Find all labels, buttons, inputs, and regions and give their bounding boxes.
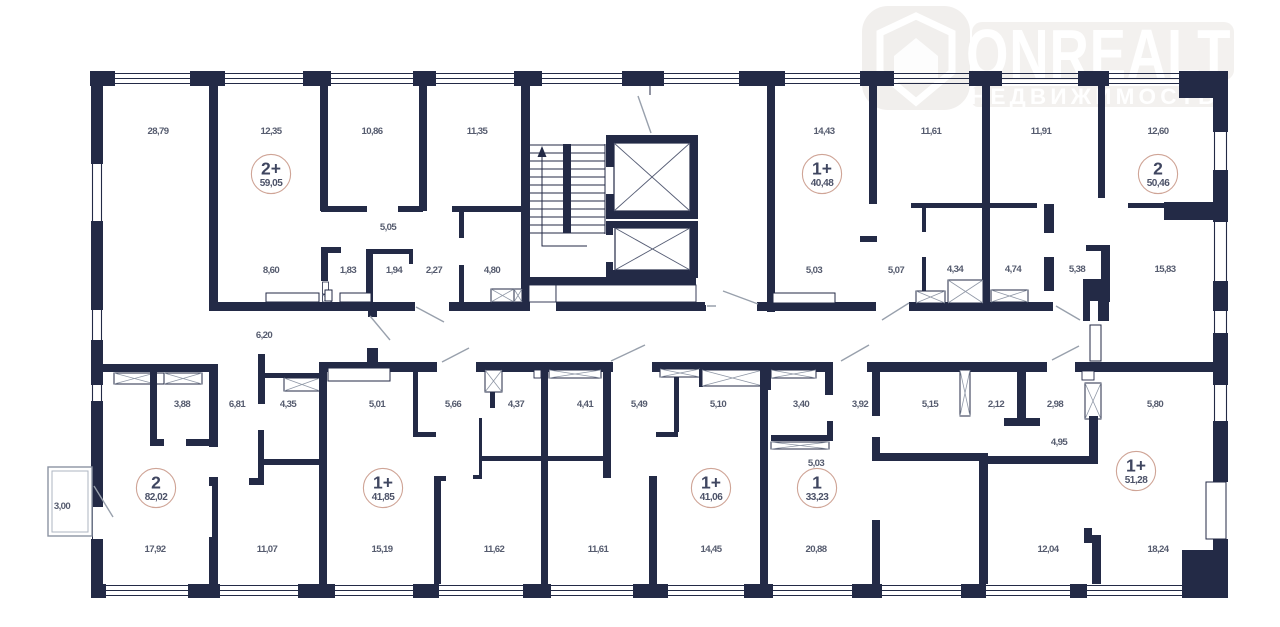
svg-text:5,03: 5,03 xyxy=(806,265,823,276)
svg-text:2: 2 xyxy=(1153,159,1163,179)
svg-text:15,19: 15,19 xyxy=(371,544,392,555)
svg-text:5,15: 5,15 xyxy=(922,399,940,410)
svg-text:2,98: 2,98 xyxy=(1047,399,1065,410)
svg-text:5,49: 5,49 xyxy=(631,399,648,410)
svg-text:20,88: 20,88 xyxy=(805,544,827,555)
svg-text:1+: 1+ xyxy=(1126,456,1146,476)
svg-text:4,34: 4,34 xyxy=(947,264,965,275)
svg-text:33,23: 33,23 xyxy=(806,492,829,503)
svg-text:11,91: 11,91 xyxy=(1031,126,1053,137)
svg-text:4,41: 4,41 xyxy=(577,399,595,410)
svg-text:1+: 1+ xyxy=(373,473,393,493)
svg-text:12,04: 12,04 xyxy=(1037,544,1059,555)
svg-text:5,05: 5,05 xyxy=(380,222,398,233)
svg-text:3,00: 3,00 xyxy=(54,501,71,512)
svg-text:4,74: 4,74 xyxy=(1005,264,1023,275)
svg-text:6,81: 6,81 xyxy=(229,399,247,410)
svg-text:2+: 2+ xyxy=(261,159,281,179)
svg-text:1: 1 xyxy=(812,473,822,493)
svg-text:11,62: 11,62 xyxy=(484,544,505,555)
svg-text:11,07: 11,07 xyxy=(257,544,278,555)
svg-text:51,28: 51,28 xyxy=(1125,475,1148,486)
svg-text:12,60: 12,60 xyxy=(1147,126,1168,137)
svg-text:4,95: 4,95 xyxy=(1051,437,1069,448)
svg-text:1+: 1+ xyxy=(701,473,721,493)
svg-text:1+: 1+ xyxy=(812,159,832,179)
svg-text:1,83: 1,83 xyxy=(340,265,357,276)
svg-text:4,35: 4,35 xyxy=(280,399,298,410)
svg-text:3,40: 3,40 xyxy=(793,399,810,410)
svg-text:8,60: 8,60 xyxy=(263,265,280,276)
svg-text:14,45: 14,45 xyxy=(700,544,722,555)
svg-text:40,48: 40,48 xyxy=(811,178,834,189)
svg-text:4,37: 4,37 xyxy=(508,399,525,410)
svg-text:5,07: 5,07 xyxy=(888,265,905,276)
svg-text:50,46: 50,46 xyxy=(1147,178,1170,189)
svg-text:6,20: 6,20 xyxy=(256,330,273,341)
svg-text:3,88: 3,88 xyxy=(174,399,192,410)
svg-text:5,10: 5,10 xyxy=(710,399,727,410)
svg-text:41,06: 41,06 xyxy=(700,492,723,503)
svg-text:1,94: 1,94 xyxy=(386,265,404,276)
svg-text:2,12: 2,12 xyxy=(988,399,1005,410)
svg-text:12,35: 12,35 xyxy=(260,126,282,137)
svg-text:5,01: 5,01 xyxy=(369,399,387,410)
svg-text:11,61: 11,61 xyxy=(588,544,610,555)
svg-text:59,05: 59,05 xyxy=(260,178,283,189)
svg-text:82,02: 82,02 xyxy=(145,492,168,503)
svg-text:17,92: 17,92 xyxy=(144,544,165,555)
svg-text:5,03: 5,03 xyxy=(808,458,825,469)
svg-text:2,27: 2,27 xyxy=(426,265,443,276)
svg-text:15,83: 15,83 xyxy=(1154,264,1175,275)
svg-text:3,92: 3,92 xyxy=(852,399,869,410)
svg-text:2: 2 xyxy=(151,473,161,493)
svg-text:41,85: 41,85 xyxy=(372,492,395,503)
svg-text:4,80: 4,80 xyxy=(484,265,501,276)
svg-text:14,43: 14,43 xyxy=(813,126,834,137)
svg-text:5,66: 5,66 xyxy=(445,399,462,410)
svg-text:18,24: 18,24 xyxy=(1147,544,1169,555)
svg-text:11,35: 11,35 xyxy=(467,126,489,137)
svg-text:11,61: 11,61 xyxy=(921,126,943,137)
svg-text:5,38: 5,38 xyxy=(1069,264,1087,275)
svg-text:10,86: 10,86 xyxy=(361,126,382,137)
svg-text:5,80: 5,80 xyxy=(1147,399,1164,410)
svg-text:28,79: 28,79 xyxy=(147,126,168,137)
